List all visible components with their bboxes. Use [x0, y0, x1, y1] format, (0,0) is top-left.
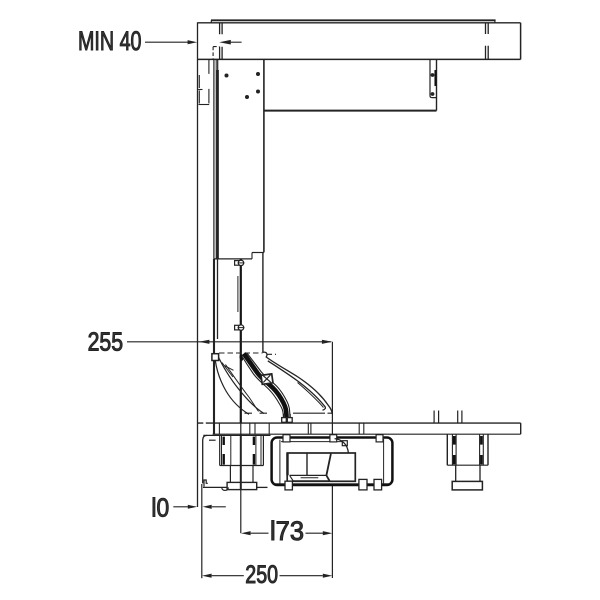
svg-text:MIN 40: MIN 40 [78, 26, 142, 56]
svg-text:l73: l73 [270, 516, 304, 546]
svg-text:250: 250 [245, 561, 278, 589]
svg-text:255: 255 [88, 326, 124, 356]
svg-text:l0: l0 [151, 492, 169, 522]
